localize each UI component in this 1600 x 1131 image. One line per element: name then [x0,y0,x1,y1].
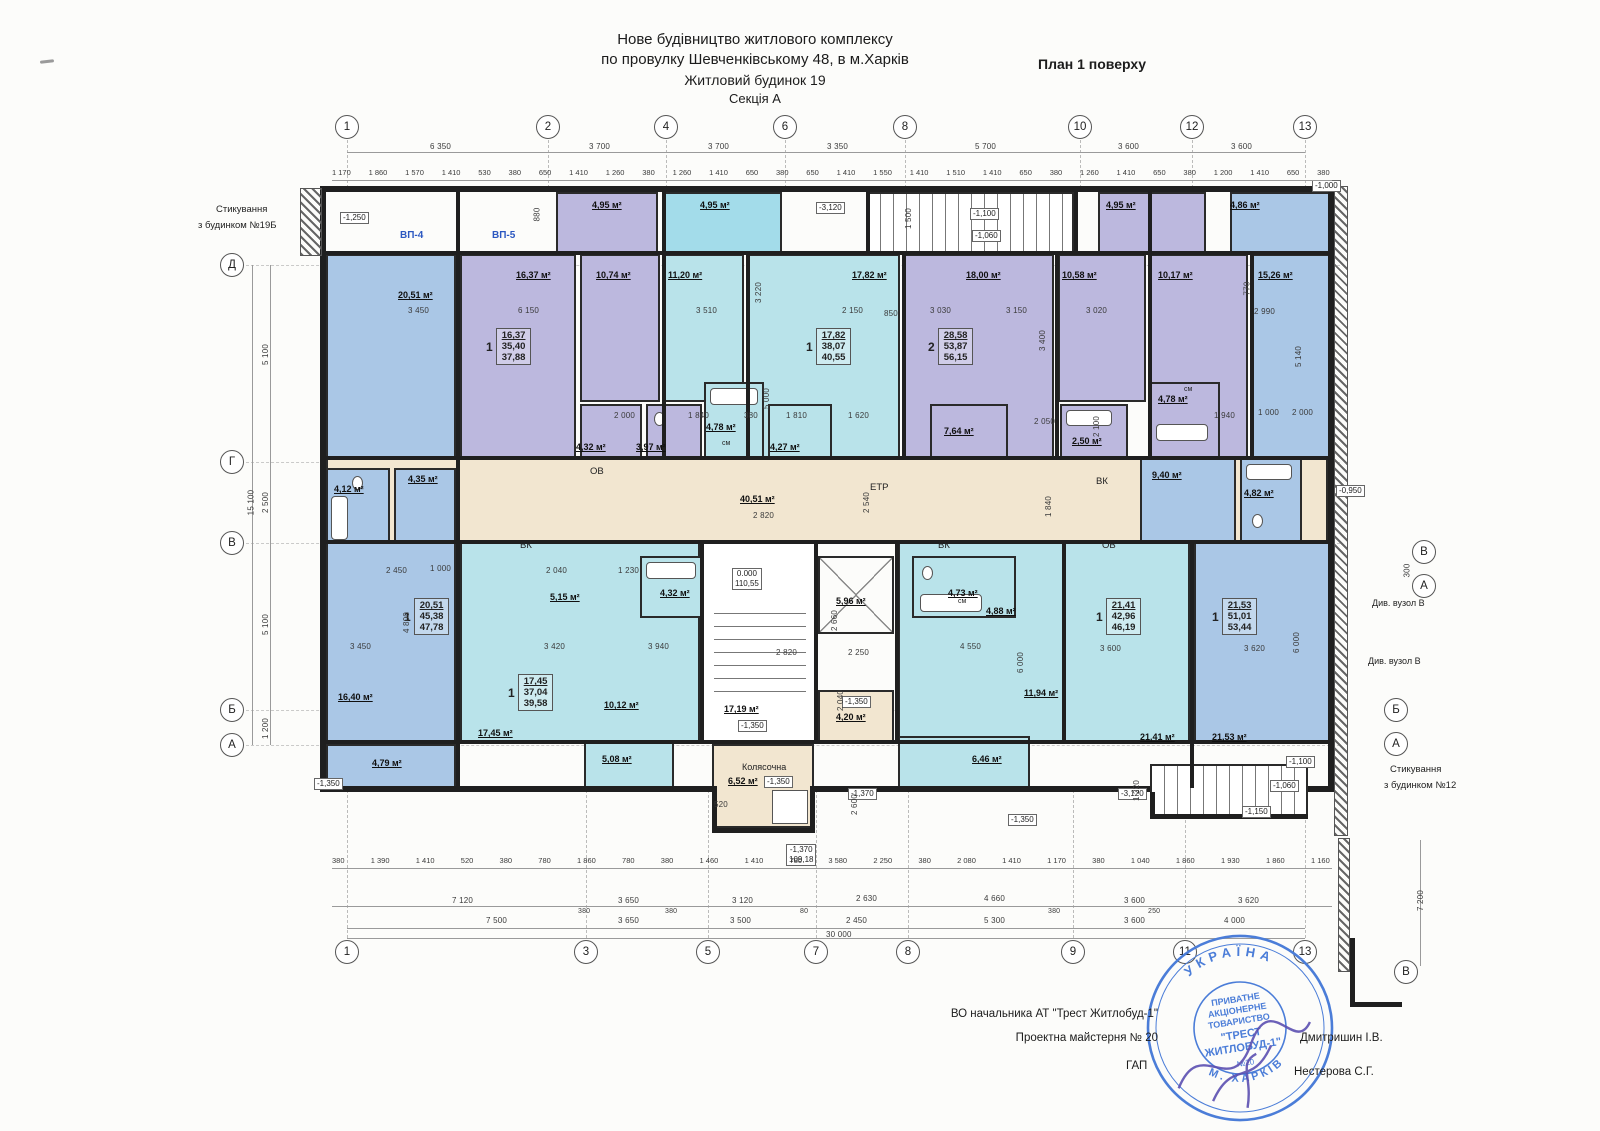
area-total: 40,55 [822,352,846,363]
dim-label: 380 [776,168,789,177]
dim-label: 250 [1148,908,1160,915]
dim-label: 2 820 [753,511,774,520]
detail-node-note: Див. вузол В [1372,598,1425,608]
axis-bubble-right: Б [1384,698,1408,722]
room-area-label: 4,82 м² [1244,488,1274,498]
dim-label: 650 [746,168,759,177]
dim-label: 300 [1402,564,1411,578]
level-mark: 0.000110,55 [732,568,762,590]
bathtub-icon [331,496,348,540]
dim-label: 3 030 [930,306,951,315]
area-total: 53,44 [1228,622,1252,633]
room-area-label: 2,50 м² [1072,436,1102,446]
area-living: 38,07 [822,341,846,352]
wall [320,540,1334,544]
join-note-right: Стикування [1390,764,1441,775]
axis-bubble-left: Г [220,450,244,474]
footer-signature-name: Нестерова С.Г. [1294,1066,1374,1078]
dim-label: 2 080 [957,856,976,865]
room-area-label: 16,40 м² [338,692,373,702]
room-area-label: 6,46 м² [972,754,1002,764]
axis-bubble-right: А [1384,732,1408,756]
area-living: 42,96 [1112,611,1136,622]
dim-label: 1 000 [1258,408,1279,417]
wall [320,186,1334,192]
room-area-label: 4,95 м² [1106,200,1136,210]
title-line-2: по провулку Шевченківському 48, в м.Харк… [455,50,1055,70]
dim-label: 4 550 [960,642,981,651]
dim-label: 2 990 [1254,307,1275,316]
area-total: 39,58 [524,698,548,709]
sheet-title: Нове будівництво житлового комплексу по … [455,30,1055,108]
elevation-label: -1,060 [972,230,1001,242]
detail-node-note: Див. вузол В [1368,656,1421,666]
axis-bubble-top: 13 [1293,115,1317,139]
wall [320,786,712,792]
dim-label: 780 [790,856,803,865]
dim-label: 1 570 [405,168,424,177]
dim-label: 520 [714,800,728,809]
dim-label: 1 390 [371,856,390,865]
dim-label: 3 220 [754,282,763,303]
room-tag-sm: см [722,440,730,447]
elevation-label: -1,000 [1312,180,1341,192]
dim-label: 1 260 [1080,168,1099,177]
dim-label: 5 000 [762,388,771,409]
dim-label: 5 100 [261,614,270,635]
dim-label: 770 [1242,282,1251,296]
adjacent-wall-hatch [1334,186,1348,836]
dim-label: 380 [1317,168,1330,177]
wall [712,786,717,832]
stroller-room-label: Колясочна [742,762,786,772]
dim-label: 380 [578,908,590,915]
dim-label: 380 [661,856,674,865]
stamp-arc-top: УКРАЇНА [1179,937,1279,980]
wall [866,190,870,252]
room-area-label: 4,35 м² [408,474,438,484]
dimension-line [347,152,1305,153]
room-area-label: 6,52 м² [728,776,758,786]
dim-label: 2 450 [846,916,867,925]
room-area-label: 7,64 м² [944,426,974,436]
room-area-label: 16,37 м² [516,270,551,280]
dim-label: 15 100 [246,490,255,516]
wall [814,542,818,744]
axis-bubble-bottom: 3 [574,940,598,964]
area-total: 37,88 [502,352,526,363]
dim-label: 380 [332,856,345,865]
wall [902,251,906,456]
plan-label: План 1 поверху [1038,56,1146,72]
dim-label: 3 450 [408,306,429,315]
dim-label: 2 040 [836,690,845,711]
dim-label: 2 660 [830,610,839,631]
apartment-areas: 20,5145,3847,78 [414,598,450,635]
dim-label: 1 000 [430,564,451,573]
dim-label: 3 450 [350,642,371,651]
bathroom [1240,458,1302,542]
room-area-label: 17,45 м² [478,728,513,738]
area-room: 28,58 [944,330,968,341]
area-room: 16,37 [502,330,526,341]
dim-label: 1 860 [1176,856,1195,865]
elevation-label: -1,100 [1286,756,1315,768]
axis-bubble-top: 1 [335,115,359,139]
dim-label: 5 140 [1294,346,1303,367]
room-area-label: 4,95 м² [700,200,730,210]
dimension-line [347,928,1305,929]
toilet-icon [1252,514,1263,528]
dim-label: 2 450 [386,566,407,575]
room-area-label: 3,97 м² [636,442,666,452]
room-area-label: 4,20 м² [836,712,866,722]
scan-artifact [40,59,54,63]
apartment-areas: 21,5351,0153,44 [1222,598,1258,635]
dim-label: 3 350 [827,142,848,151]
dim-label: 1 260 [606,168,625,177]
dim-label: 850 [884,309,898,318]
room-area-label: 11,94 м² [1024,688,1058,698]
wall [1350,938,1355,1006]
room-tag-vk: ВК [520,540,532,551]
room-area-label: 10,58 м² [1062,270,1097,280]
dim-label: 1 500 [904,208,913,229]
level-relative: -1,370 [789,845,813,855]
dim-label: 1 230 [618,566,639,575]
dim-label: 520 [461,856,474,865]
wall [320,740,1334,744]
dim-label: 650 [806,168,819,177]
room-area-label: 4,73 м² [948,588,978,598]
dim-label: 1 840 [688,411,709,420]
footer-workshop: Проектна майстерня № 20 [828,1032,1158,1044]
storage-box [772,790,808,824]
room-area-label: 5,96 м² [836,596,866,606]
dim-label: 6 150 [518,306,539,315]
axis-bubble-bottom: 7 [804,940,828,964]
apartment-areas: 17,8238,0740,55 [816,328,852,365]
dim-label: 1 410 [983,168,1002,177]
area-living: 51,01 [1228,611,1252,622]
dim-label: 1 510 [946,168,965,177]
title-line-4: Секція А [455,90,1055,108]
dim-label: 1 200 [1214,168,1233,177]
dim-label: 380 [918,856,931,865]
dim-label: 380 [665,908,677,915]
elevation-label: -1,350 [1008,814,1037,826]
floor-plan-sheet: Нове будівництво житлового комплексу по … [0,0,1600,1131]
dim-label: 7 120 [452,896,473,905]
apartment-count: 1 [1096,610,1103,624]
dim-label: 380 [642,168,655,177]
apartment-count: 1 [486,340,493,354]
stairwell-top [866,192,1074,253]
balcony-room [584,740,674,788]
dim-label: 2 000 [1292,408,1313,417]
room-area-label: 10,17 м² [1158,270,1193,280]
dim-label: 3 650 [618,916,639,925]
wall [320,456,1334,460]
dim-label: 1 940 [1214,411,1235,420]
apartment-summary: 228,5853,8756,15 [928,328,973,365]
room-area-label: 4,78 м² [706,422,736,432]
dim-label: 7 200 [1416,890,1425,911]
dim-label: 3 700 [708,142,729,151]
title-line-1: Нове будівництво житлового комплексу [455,30,1055,50]
bathtub-icon [1246,464,1292,480]
dim-label: 3 600 [1118,142,1139,151]
apartment-summary: 121,5351,0153,44 [1212,598,1257,635]
apartment-areas: 17,4537,0439,58 [518,674,554,711]
vent-unit-label: ВП-5 [492,230,515,241]
bathtub-icon [1066,410,1112,426]
dim-label: 3 620 [1238,896,1259,905]
dim-label: 1 860 [577,856,596,865]
title-line-3: Житловий будинок 19 [455,70,1055,90]
wall [1055,251,1059,456]
dim-label: 7 500 [486,916,507,925]
adjacent-wall-hatch [1338,838,1350,972]
axis-bubble-bottom: 5 [696,940,720,964]
room-area-label: 4,86 м² [1230,200,1260,210]
axis-bubble-top: 10 [1068,115,1092,139]
dim-label: 4 000 [1224,916,1245,925]
apartment-summary: 117,8238,0740,55 [806,328,851,365]
dim-label: 6 000 [1016,652,1025,673]
room-area-label: 4,78 м² [1158,394,1188,404]
wall [456,190,460,786]
dim-label: 2 100 [1092,416,1101,437]
apartment-areas: 16,3735,4037,88 [496,328,532,365]
dim-label: 3 600 [1100,644,1121,653]
dim-label: 3 940 [648,642,669,651]
dim-label: 880 [532,208,541,222]
apartment-areas: 21,4142,9646,19 [1106,598,1142,635]
room-area-label: 4,32 м² [660,588,690,598]
dim-label: 3 510 [696,306,717,315]
dim-label: 1 410 [837,168,856,177]
apartment-count: 2 [928,340,935,354]
toilet-icon [922,566,933,580]
room-tag-vk: ВК [938,540,950,551]
dim-label: 5 100 [261,344,270,365]
dim-label: 380 [1048,908,1060,915]
room-area-label: 9,40 м² [1152,470,1182,480]
dim-label: 3 120 [732,896,753,905]
apartment-summary: 116,3735,4037,88 [486,328,531,365]
dim-label: 2 000 [614,411,635,420]
axis-bubble-left: А [220,733,244,757]
dim-label: 3 600 [1231,142,1252,151]
dim-label: 1 860 [1266,856,1285,865]
area-room: 21,53 [1228,600,1252,611]
apartment-count: 1 [806,340,813,354]
elevation-label: -3,120 [816,202,845,214]
elevation-label: -1,150 [1242,806,1271,818]
room-area-label: 17,82 м² [852,270,887,280]
axis-bubble-top: 4 [654,115,678,139]
dim-label: 6 000 [1292,632,1301,653]
dim-label: 3 700 [589,142,610,151]
dim-label: 1 260 [673,168,692,177]
vent-unit-label: ВП-4 [400,230,423,241]
room-tag-sm: см [958,598,966,605]
room-tag-etr: ЕТР [870,482,888,493]
elevation-label: -1,060 [1270,780,1299,792]
dim-label: 780 [622,856,635,865]
room-area-label: 5,15 м² [550,592,580,602]
wall [662,190,666,456]
bathtub-icon [646,562,696,579]
axis-bubble-right: В [1394,960,1418,984]
dim-label: 1 410 [1250,168,1269,177]
dim-label: 650 [1019,168,1032,177]
room [1194,542,1330,744]
area-total: 46,19 [1112,622,1136,633]
dim-label: 530 [478,168,491,177]
room-tag-vk: ВК [1096,476,1108,487]
dim-label: 1 930 [1221,856,1240,865]
wall [1190,542,1194,788]
dimension-chain-bottom: 3801 3901 4105203807801 8607803801 4601 … [332,856,1330,865]
axis-bubble-top: 2 [536,115,560,139]
apartment-count: 1 [508,686,515,700]
dim-label: 2 820 [776,648,797,657]
wall [1350,1002,1402,1007]
dimension-chain-top: 1 1701 8601 5701 4105303806501 4101 2603… [332,168,1330,177]
bathroom [640,556,702,618]
area-living: 53,87 [944,341,968,352]
dim-label: 2 540 [862,492,871,513]
room-area-label: 4,95 м² [592,200,622,210]
dim-label: 2 500 [261,492,270,513]
wall [1148,190,1152,456]
wall [1150,814,1308,819]
area-room: 20,51 [420,600,444,611]
dim-label: 1 200 [261,718,270,739]
dim-label: 1 040 [1131,856,1150,865]
dim-label: 80 [800,908,808,915]
dim-label: 4 800 [402,612,411,633]
dim-label: 3 500 [730,916,751,925]
axis-bubble-left: В [220,531,244,555]
dim-label: 380 [1183,168,1196,177]
dim-label: 650 [1153,168,1166,177]
room-area-label: 4,79 м² [372,758,402,768]
dim-label: 2 630 [856,894,877,903]
join-note-right: з будинком №12 [1384,780,1456,791]
elevation-label: -1,350 [738,720,767,732]
axis-bubble-right: А [1412,574,1436,598]
wall [810,786,815,832]
dimension-line [332,906,1332,907]
room [1252,254,1330,458]
room-area-label: 10,12 м² [604,700,639,710]
wall [895,542,899,744]
dim-label: 1 620 [848,411,869,420]
dim-label: 380 [1050,168,1063,177]
wall [320,186,326,786]
dim-label: 1 410 [1117,168,1136,177]
wall [700,542,704,744]
bathroom [326,468,390,542]
wall [1062,542,1066,744]
elevation-label: -0,950 [1336,485,1365,497]
area-living: 37,04 [524,687,548,698]
footer-gap-label: ГАП [1126,1060,1147,1072]
dim-label: 3 400 [1038,330,1047,351]
elevation-label: -1,350 [314,778,343,790]
dim-label: 1 170 [1047,856,1066,865]
dim-label: 2 040 [546,566,567,575]
elevation-label: -1,350 [842,696,871,708]
dim-label: 1 410 [910,168,929,177]
dim-label: 3 020 [1086,306,1107,315]
room-area-label: 40,51 м² [740,494,775,504]
dim-label: 1 220 [1132,780,1141,801]
dim-label: 1 410 [709,168,728,177]
area-room: 21,41 [1112,600,1136,611]
dim-label: 380 [509,168,522,177]
dim-label: 1 810 [786,411,807,420]
area-living: 35,40 [502,341,526,352]
room-area-label: 15,26 м² [1258,270,1293,280]
room-area-label: 10,74 м² [596,270,631,280]
area-total: 56,15 [944,352,968,363]
dim-label: 1 410 [569,168,588,177]
axis-bubble-top: 6 [773,115,797,139]
room [326,254,456,458]
join-note-left: з будинком №19Б [198,220,276,231]
dim-label: 1 410 [442,168,461,177]
axis-bubble-left: Б [220,698,244,722]
footer-approval: ВО начальника АТ "Трест Житлобуд-1" [828,1008,1158,1020]
dim-label: 5 300 [984,916,1005,925]
room-area-label: 11,20 м² [668,270,702,280]
wall [320,251,1334,255]
dimension-line [270,265,271,745]
dim-label: 1 410 [745,856,764,865]
dim-label: 30 000 [826,930,852,939]
dim-label: 3 580 [828,856,847,865]
area-room: 17,82 [822,330,846,341]
level-absolute: 110,55 [735,579,759,589]
dimension-line [332,180,1332,181]
apartment-summary: 121,4142,9646,19 [1096,598,1141,635]
dim-label: 2 250 [848,648,869,657]
axis-bubble-top: 12 [1180,115,1204,139]
level-relative: 0.000 [735,569,759,579]
room-area-label: 4,88 м² [986,606,1016,616]
bathtub-icon [1156,424,1208,441]
wall [746,251,750,456]
area-room: 17,45 [524,676,548,687]
dim-label: 2 250 [873,856,892,865]
dim-label: 3 420 [544,642,565,651]
apartment-summary: 117,4537,0439,58 [508,674,553,711]
axis-bubble-bottom: 8 [896,940,920,964]
dim-label: 1 410 [1002,856,1021,865]
room-area-label: 5,08 м² [602,754,632,764]
dim-label: 2 050 [1034,417,1055,426]
room-area-label: 20,51 м² [398,290,433,300]
wall [1074,190,1078,252]
room-area-label: 21,41 м² [1140,732,1175,742]
dim-label: 650 [1287,168,1300,177]
room-tag-sm: см [1184,386,1192,393]
dim-label: 380 [500,856,513,865]
